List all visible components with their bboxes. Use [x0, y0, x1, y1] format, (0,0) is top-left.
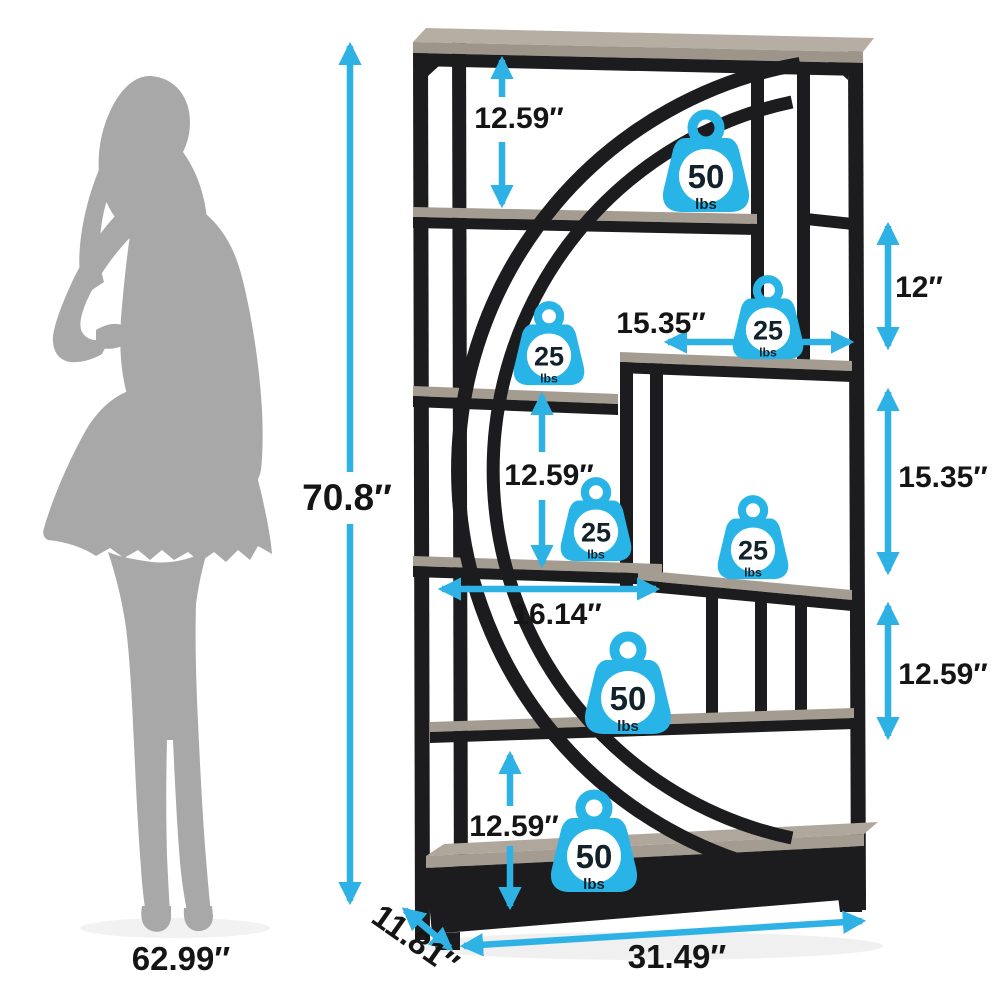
base-foot-right	[838, 894, 862, 912]
weight-unit: lbs	[540, 372, 558, 386]
weight-value: 25	[581, 517, 611, 547]
weight-badge-shelf7: 50 lbs	[585, 637, 671, 736]
weight-unit: lbs	[587, 548, 605, 562]
weight-value: 50	[576, 838, 613, 875]
dim-label-total-height: 70.8″	[302, 477, 392, 518]
mid-divider-post	[650, 360, 663, 590]
figure-shadow	[80, 918, 270, 938]
left-front-post	[413, 46, 430, 940]
weight-value: 25	[534, 341, 564, 371]
weight-value: 25	[738, 535, 768, 565]
weight-unit: lbs	[583, 876, 605, 893]
silhouette-hand	[96, 324, 126, 349]
dim-label-total-width: 31.49″	[628, 938, 727, 975]
dim-label-middle-width: 16.14″	[512, 598, 601, 631]
weight-unit: lbs	[617, 718, 639, 735]
weight-badge-right-lower: 25 lbs	[718, 499, 789, 579]
weight-value: 50	[610, 680, 647, 717]
weight-value: 25	[753, 315, 783, 345]
silhouette-skirt	[43, 392, 272, 562]
right-front-post	[848, 50, 866, 910]
weight-handle-icon	[581, 795, 608, 822]
weight-unit: lbs	[695, 196, 717, 213]
weight-badge-step-shelf: 25 lbs	[733, 279, 804, 359]
dim-label-step-width: 15.35″	[616, 307, 705, 340]
dim-label-right-middle: 15.35″	[898, 461, 987, 494]
weight-unit: lbs	[759, 346, 777, 360]
product-dimension-diagram: 50 lbs 25 lbs 25 lbs 25 lbs	[0, 0, 1000, 1000]
lower-post-c	[795, 595, 807, 716]
weight-value: 50	[688, 158, 725, 195]
lower-post-b	[755, 596, 767, 717]
cubby-left-post	[797, 62, 810, 360]
dim-label-right-lower: 12.59″	[898, 658, 987, 691]
weight-handle-icon	[615, 637, 642, 664]
dim-label-figure-height: 62.99″	[132, 940, 231, 977]
lower-post-a	[706, 596, 718, 718]
dim-label-top-gap: 12.59″	[474, 102, 563, 135]
weight-handle-icon	[757, 279, 779, 301]
diagram-canvas: 50 lbs 25 lbs 25 lbs 25 lbs	[0, 0, 1000, 1000]
dim-label-left-middle-gap: 12.59″	[504, 459, 593, 492]
woman-silhouette	[43, 76, 272, 932]
silhouette-legs	[108, 550, 211, 916]
dim-label-left-bottom-gap: 12.59″	[469, 810, 558, 843]
weight-unit: lbs	[744, 566, 762, 580]
dim-label-right-cubby: 12″	[895, 271, 943, 304]
weight-handle-icon	[742, 499, 764, 521]
weight-handle-icon	[538, 305, 560, 327]
